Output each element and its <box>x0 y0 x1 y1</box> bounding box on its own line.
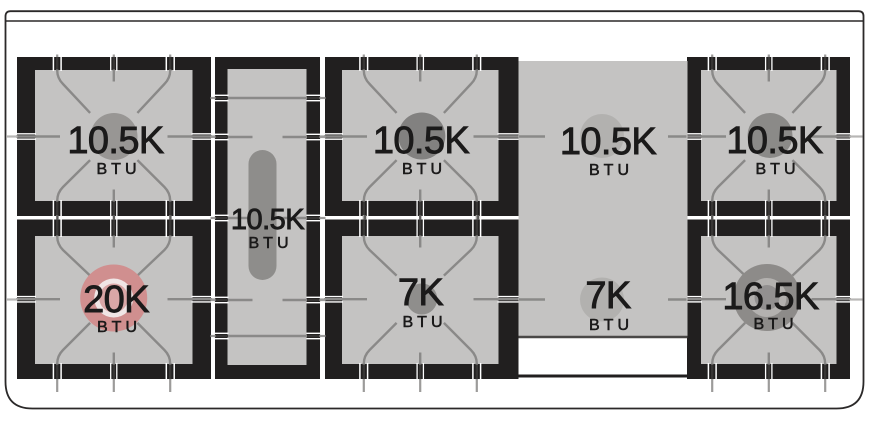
svg-text:BTU: BTU <box>589 162 633 179</box>
svg-text:BTU: BTU <box>403 314 447 331</box>
svg-text:BTU: BTU <box>589 317 633 334</box>
svg-text:7K: 7K <box>585 275 631 317</box>
svg-text:20K: 20K <box>83 279 149 321</box>
svg-text:BTU: BTU <box>756 161 800 178</box>
svg-text:BTU: BTU <box>97 319 141 336</box>
svg-text:10.5K: 10.5K <box>726 120 823 162</box>
svg-text:BTU: BTU <box>249 235 293 252</box>
svg-text:BTU: BTU <box>402 161 446 178</box>
svg-text:BTU: BTU <box>97 161 141 178</box>
svg-text:7K: 7K <box>398 272 444 314</box>
svg-text:10.5K: 10.5K <box>373 120 470 162</box>
svg-text:10.5K: 10.5K <box>231 204 305 236</box>
svg-text:10.5K: 10.5K <box>560 121 657 163</box>
svg-text:10.5K: 10.5K <box>67 120 164 162</box>
svg-text:16.5K: 16.5K <box>722 276 819 318</box>
svg-text:BTU: BTU <box>754 316 798 333</box>
